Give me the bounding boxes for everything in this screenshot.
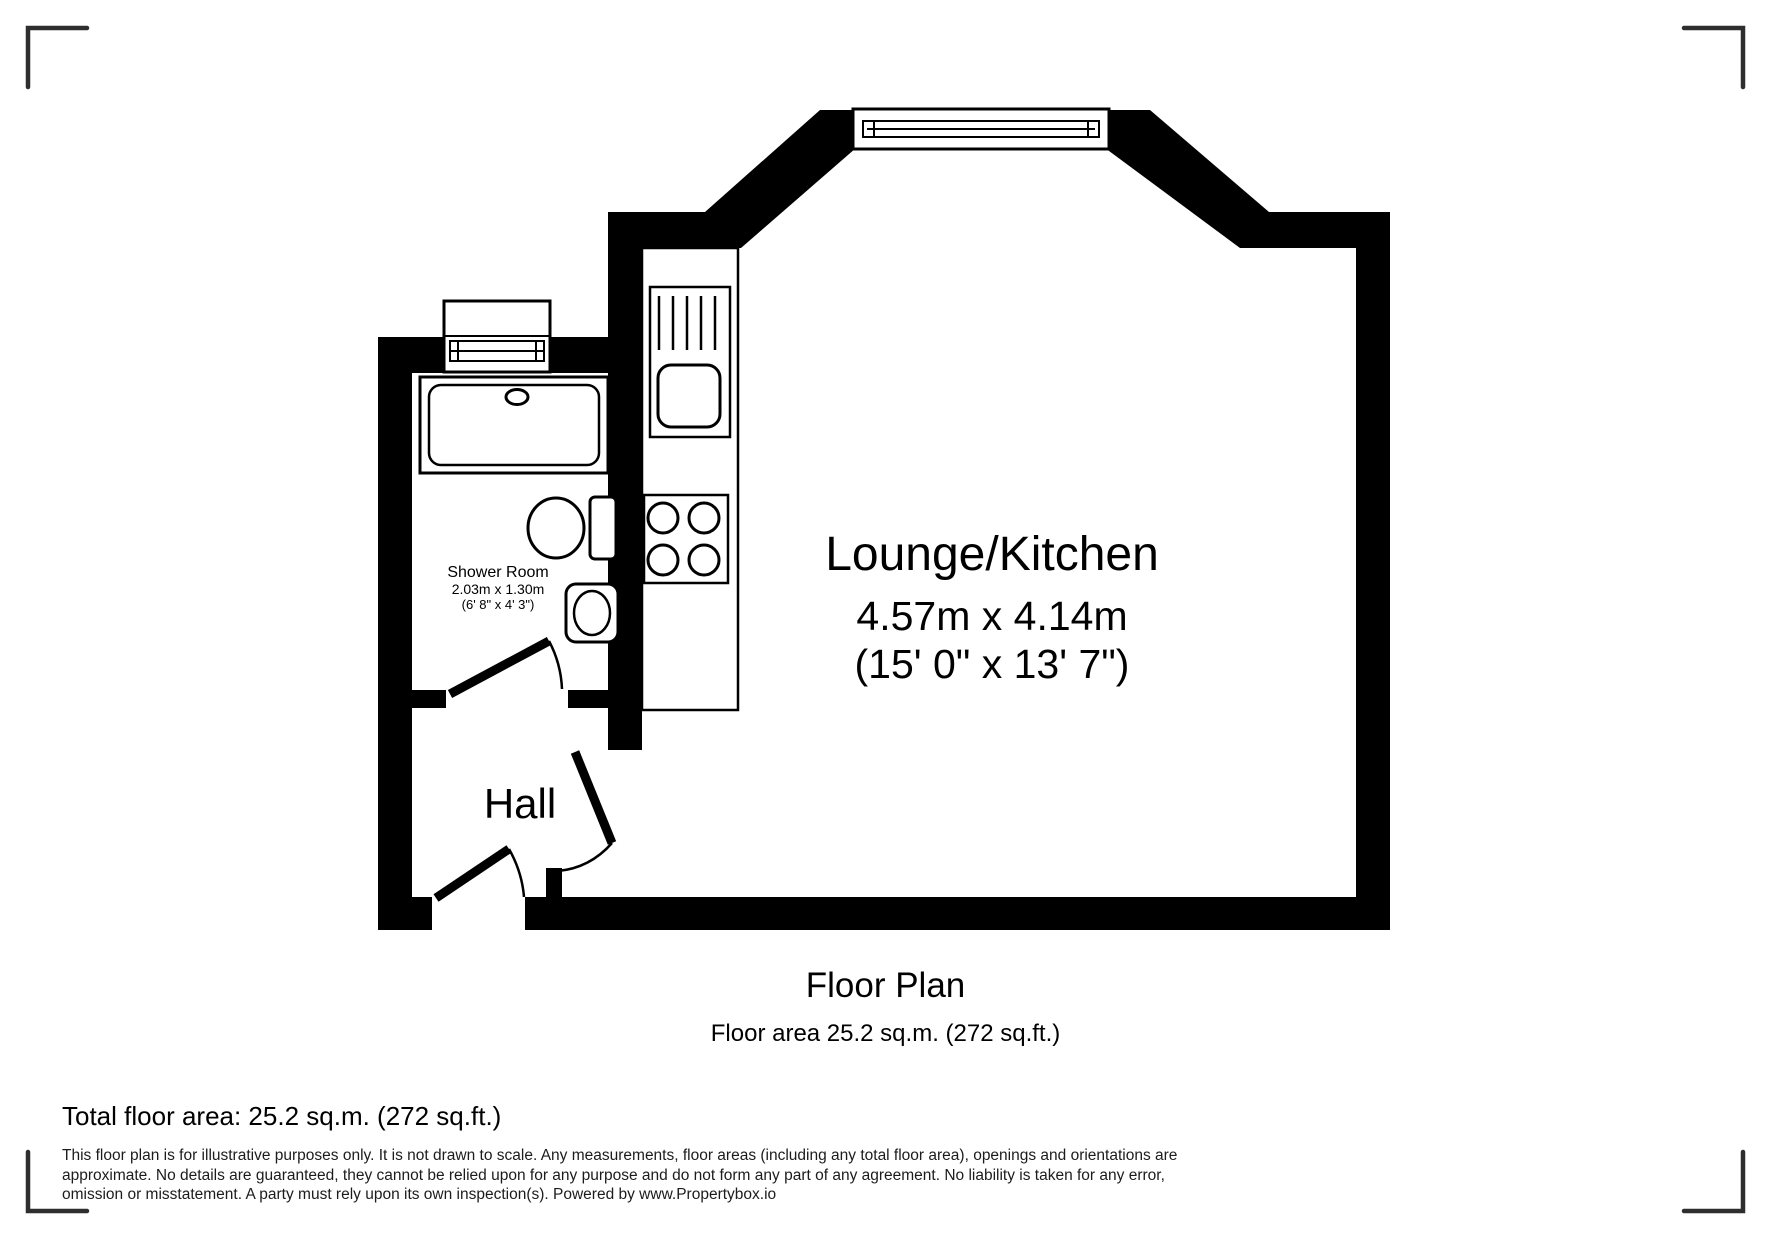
wall-lounge-door-jamb	[546, 868, 562, 900]
wall-left	[378, 337, 412, 930]
toilet	[528, 497, 616, 559]
wall-hall-stub	[608, 708, 642, 750]
room-label-hall: Hall	[484, 780, 556, 827]
room-dim-shower-imperial: (6' 8" x 4' 3")	[462, 597, 535, 612]
disclaimer-line-1: This floor plan is for illustrative purp…	[62, 1146, 1177, 1166]
bay-window	[853, 109, 1109, 149]
corner-mark-top-left	[28, 28, 87, 87]
wall-bottom-left-stub	[378, 897, 432, 930]
total-floor-area: Total floor area: 25.2 sq.m. (272 sq.ft.…	[62, 1101, 501, 1132]
doors	[436, 641, 612, 898]
wash-basin	[566, 584, 618, 642]
room-dim-lounge-metric: 4.57m x 4.14m	[856, 593, 1127, 639]
room-label-shower-room: Shower Room	[447, 564, 548, 581]
wall-shower-door-right-post	[568, 690, 642, 708]
door-entrance	[436, 849, 524, 898]
wall-shower-door-left-post	[412, 690, 446, 708]
shower-tray	[420, 377, 608, 473]
room-label-lounge-kitchen: Lounge/Kitchen	[825, 528, 1159, 581]
door-lounge	[558, 752, 612, 871]
corner-mark-bottom-right	[1684, 1152, 1743, 1211]
disclaimer-line-2: approximate. No details are guaranteed, …	[62, 1166, 1177, 1186]
hob-4-burner	[644, 495, 728, 583]
door-shower-room	[450, 641, 562, 694]
floor-plan-page: { "plan": { "rooms": [ { "name": "Lounge…	[0, 0, 1771, 1239]
wall-bottom-main	[525, 897, 1390, 930]
wall-diagonal-left	[705, 110, 856, 248]
disclaimer-text: This floor plan is for illustrative purp…	[62, 1146, 1177, 1205]
disclaimer-line-3: omission or misstatement. A party must r…	[62, 1185, 1177, 1205]
wall-diagonal-right	[1105, 110, 1269, 248]
wall-right	[1356, 212, 1390, 930]
room-dim-lounge-imperial: (15' 0" x 13' 7")	[855, 641, 1130, 687]
room-labels: Lounge/Kitchen 4.57m x 4.14m (15' 0" x 1…	[447, 528, 1158, 827]
floor-plan-drawing: Lounge/Kitchen 4.57m x 4.14m (15' 0" x 1…	[0, 0, 1771, 1239]
corner-mark-top-right	[1684, 28, 1743, 87]
floor-plan-title: Floor Plan	[0, 966, 1771, 1006]
room-dim-shower-metric: 2.03m x 1.30m	[452, 581, 545, 597]
kitchen-sink-drainer	[650, 287, 730, 437]
floor-plan-subtitle: Floor area 25.2 sq.m. (272 sq.ft.)	[0, 1020, 1771, 1048]
kitchen-counter	[642, 248, 738, 710]
shower-window	[444, 301, 550, 372]
